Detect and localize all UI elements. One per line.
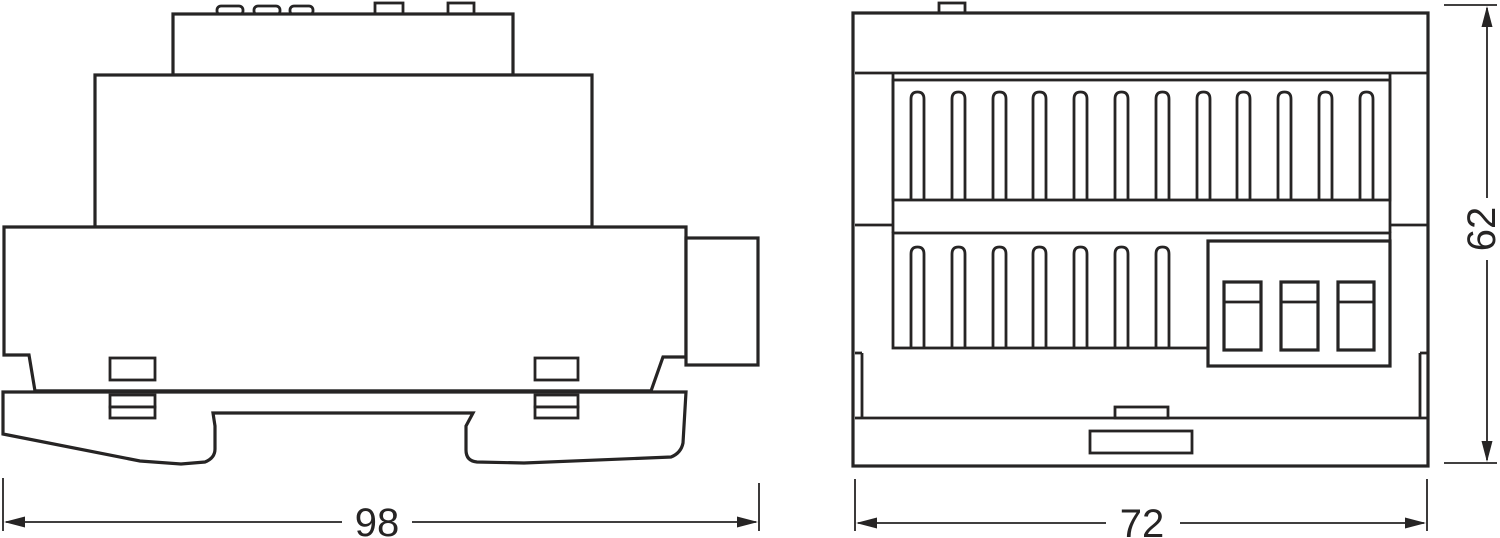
- arrowhead-down-icon: [1482, 441, 1493, 462]
- dimension-72: 72: [855, 479, 1427, 538]
- terminal-cover-top: [173, 14, 513, 75]
- dimension-62: 62: [1444, 5, 1500, 463]
- din-clip-tab: [110, 358, 155, 380]
- front-view: [853, 3, 1428, 466]
- dimension-72-label: 72: [1120, 502, 1165, 538]
- arrowhead-up-icon: [1482, 6, 1493, 27]
- dimension-98: 98: [3, 478, 759, 538]
- mounting-plate: [3, 392, 686, 464]
- din-clip-tab: [535, 407, 578, 418]
- terminal-block: [1208, 241, 1390, 366]
- din-clip-tab: [535, 395, 578, 407]
- din-clip-tab: [110, 407, 155, 418]
- arrowhead-right-icon: [1405, 518, 1426, 529]
- dimension-62-label: 62: [1460, 207, 1500, 252]
- terminal-block-frame: [1208, 241, 1390, 366]
- dimension-98-label: 98: [355, 501, 400, 538]
- arrowhead-right-icon: [737, 517, 758, 528]
- housing-upper-step: [95, 75, 592, 227]
- din-clip-tab: [535, 358, 578, 380]
- housing-body: [4, 227, 686, 391]
- din-slider: [1090, 431, 1192, 453]
- bottom-tab: [1115, 407, 1168, 418]
- side-view: [3, 3, 758, 464]
- din-clip-tab: [110, 395, 155, 407]
- technical-drawing-canvas: 98 72 62: [0, 0, 1500, 538]
- rear-protrusion: [686, 238, 758, 365]
- arrowhead-left-icon: [4, 517, 25, 528]
- dimension-drawing: 98 72 62: [0, 0, 1500, 538]
- arrowhead-left-icon: [856, 518, 877, 529]
